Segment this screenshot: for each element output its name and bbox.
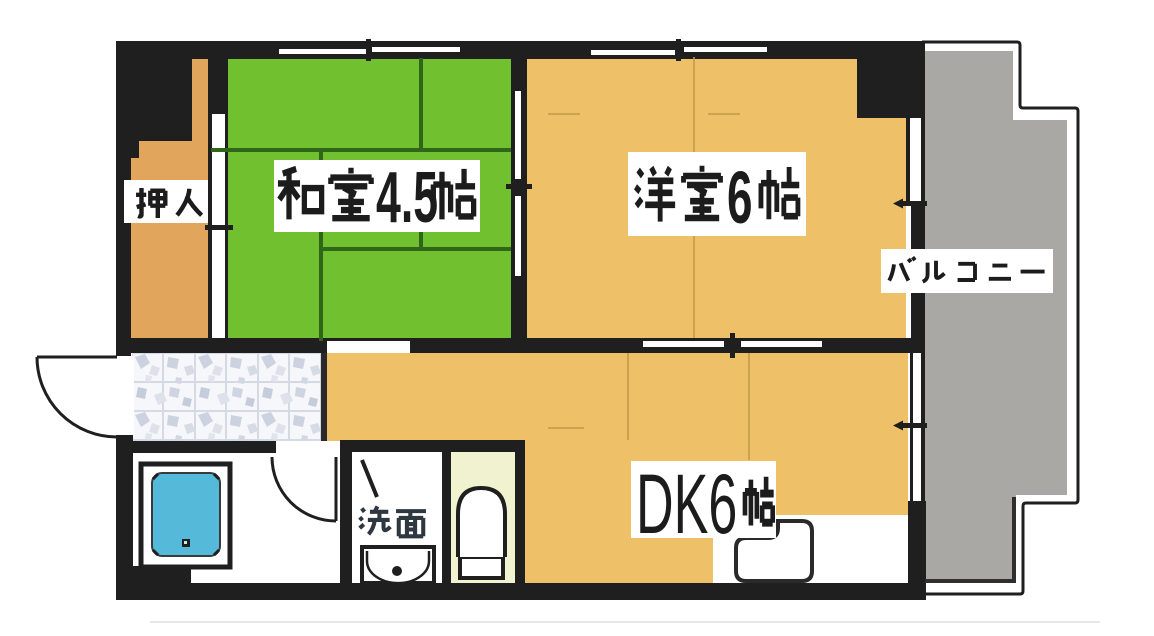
svg-text:DK6: DK6 — [636, 457, 737, 551]
svg-text:4.5: 4.5 — [376, 157, 438, 238]
svg-text:6: 6 — [727, 157, 753, 240]
